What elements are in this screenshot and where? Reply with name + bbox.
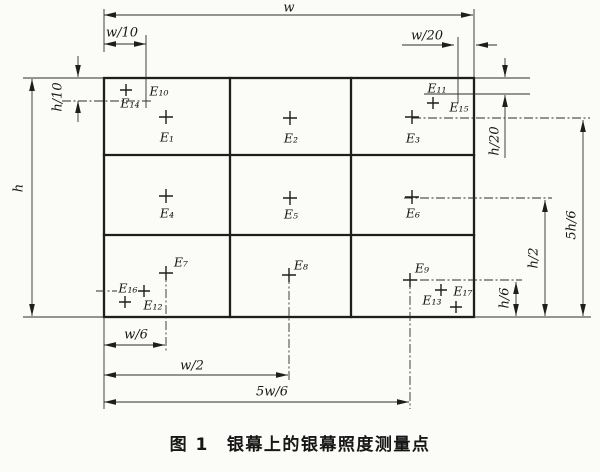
point-cross-br-corner <box>450 301 462 313</box>
point-label-e14: E₁₄ <box>119 95 139 110</box>
dim-label-w6: w/6 <box>124 328 148 343</box>
point-cross-e2 <box>283 111 297 125</box>
point-cross-e3 <box>405 110 419 124</box>
ext-lines-right-edge <box>474 78 591 317</box>
point-cross-e7 <box>159 266 173 280</box>
point-label-e16: E₁₆ <box>117 280 137 295</box>
dim-label-w10: w/10 <box>106 26 138 41</box>
point-label-e2: E₂ <box>283 130 298 145</box>
point-cross-corner-tr <box>427 97 439 109</box>
dim-label-h: h <box>12 184 27 192</box>
point-label-e11: E₁₁ <box>426 80 446 95</box>
point-label-e5: E₅ <box>283 206 298 221</box>
point-label-e12: E₁₂ <box>142 297 162 312</box>
dim-label-5h6: 5h/6 <box>565 210 580 239</box>
point-label-e17: E₁₇ <box>452 283 472 298</box>
point-label-e10: E₁₀ <box>148 83 168 98</box>
figure-page: w w/10 w/20 w/6 w/2 5w/6 h/10 h h/20 5h/… <box>0 0 600 472</box>
point-label-e13: E₁₃ <box>421 292 441 307</box>
figure-caption-number: 图 1 <box>170 435 209 455</box>
point-cross-e5 <box>283 191 297 205</box>
point-cross-e1 <box>159 110 173 124</box>
point-label-e3: E₃ <box>405 130 420 145</box>
point-cross-e6 <box>405 190 419 204</box>
point-label-e8: E₈ <box>293 257 308 272</box>
figure-caption-title: 银幕上的银幕照度测量点 <box>227 434 431 455</box>
dim-label-w2: w/2 <box>180 359 204 374</box>
dim-label-w20: w/20 <box>411 29 443 44</box>
dim-label-w: w <box>283 1 294 16</box>
point-label-e1: E₁ <box>159 129 174 144</box>
point-cross-bl-corner <box>119 296 131 308</box>
dim-label-h6: h/6 <box>498 287 513 308</box>
point-label-e7: E₇ <box>173 254 188 269</box>
point-cross-corner-tl <box>120 84 132 96</box>
dim-label-h20: h/20 <box>488 126 503 155</box>
screen-measurement-diagram: w w/10 w/20 w/6 w/2 5w/6 h/10 h h/20 5h/… <box>0 0 600 472</box>
point-cross-e4 <box>159 189 173 203</box>
dim-label-5w6: 5w/6 <box>256 385 288 400</box>
point-cross-bl-inner <box>138 285 150 297</box>
point-label-e9: E₉ <box>414 260 429 275</box>
point-label-e15: E₁₅ <box>448 99 468 114</box>
figure-caption: 图 1银幕上的银幕照度测量点 <box>170 434 431 455</box>
dim-label-h2: h/2 <box>527 247 542 268</box>
dim-label-h10: h/10 <box>51 82 66 111</box>
point-label-e6: E₆ <box>405 205 420 220</box>
point-label-e4: E₄ <box>159 205 174 220</box>
ext-lines-left-edge <box>23 78 104 317</box>
